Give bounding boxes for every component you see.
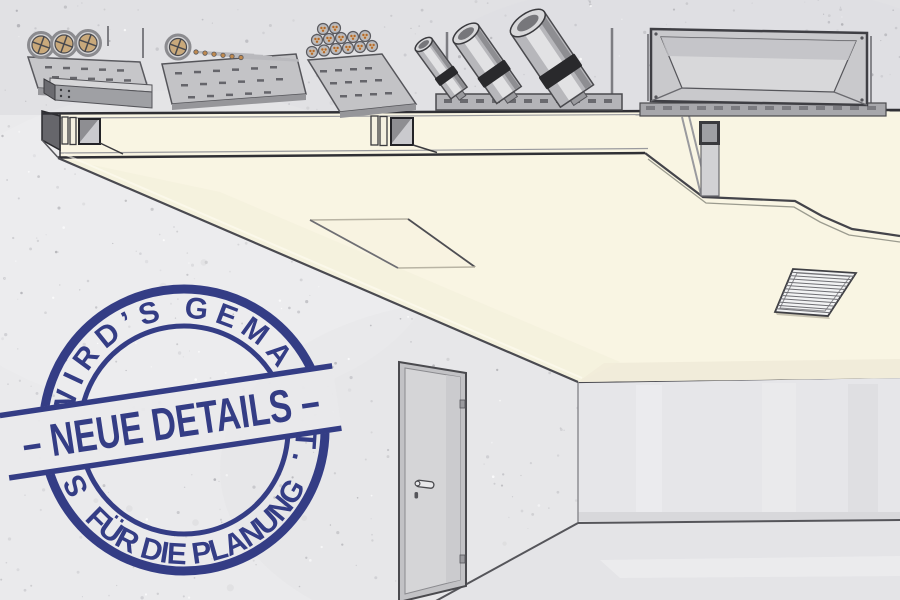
cable-bundle-icon — [331, 44, 342, 55]
cable-bundle-icon — [307, 47, 318, 58]
speckle-dot — [491, 442, 493, 444]
speckle-dot — [18, 197, 20, 199]
tray-perforation — [194, 71, 201, 74]
speckle-dot — [146, 518, 149, 521]
speckle-dot — [97, 24, 99, 26]
speckle-dot — [841, 23, 844, 26]
sill-slot — [731, 106, 740, 110]
speckle-dot — [430, 20, 433, 23]
speckle-dot — [560, 427, 562, 429]
speckle-dot — [370, 325, 372, 327]
speckle-dot — [685, 21, 687, 23]
tray-perforation — [270, 66, 277, 69]
speckle-dot — [184, 487, 185, 488]
speckle-dot — [16, 10, 18, 12]
speckle-dot — [840, 7, 841, 8]
speckle-dot — [198, 351, 200, 353]
speckle-dot — [253, 560, 255, 562]
tray-perforation — [370, 93, 377, 96]
speckle-dot — [194, 577, 196, 579]
rail-slot — [588, 99, 596, 103]
cable-bundle-icon — [367, 41, 378, 52]
power-cable-icon — [52, 32, 77, 57]
speckle-dot — [288, 307, 291, 310]
sill-slot — [833, 106, 842, 110]
speckle-dot — [77, 571, 80, 574]
speckle-dot — [64, 168, 66, 170]
speckle-dot — [400, 318, 402, 320]
speckle-dot — [125, 200, 127, 202]
speckle-dot — [884, 33, 887, 36]
speckle-dot — [330, 524, 332, 526]
profile-bar — [371, 116, 378, 145]
speckle-dot — [82, 596, 83, 597]
speckle-dot — [892, 9, 894, 11]
speckle-dot — [418, 25, 420, 27]
tray-perforation — [238, 80, 245, 83]
speckle-dot — [237, 244, 239, 246]
tray-perforation — [385, 92, 392, 95]
speckle-dot — [348, 358, 350, 360]
speckle-dot — [157, 593, 159, 595]
speckle-dot — [487, 2, 489, 4]
speckle-dot — [387, 455, 390, 458]
speckle-dot — [512, 496, 513, 497]
speckle-dot — [563, 430, 564, 431]
speckle-dot — [374, 576, 377, 579]
speckle-dot — [103, 484, 106, 487]
speckle-dot — [501, 485, 503, 487]
speckle-dot — [137, 9, 138, 10]
speckle-dot — [520, 475, 521, 476]
speckle-dot — [62, 226, 65, 229]
door-leaf-shade — [446, 375, 460, 583]
speckle-dot — [370, 518, 371, 519]
conduit-end — [203, 51, 207, 55]
speckle-dot — [12, 237, 14, 239]
speckle-dot — [220, 519, 222, 521]
cable-bundle-icon — [336, 33, 347, 44]
speckle-dot — [357, 497, 359, 499]
speckle-dot — [160, 270, 162, 272]
speckle-blob — [502, 541, 506, 545]
conduit-end — [221, 53, 225, 57]
speckle-dot — [188, 596, 190, 598]
access-panel-edge — [310, 219, 408, 220]
speckle-dot — [6, 562, 8, 564]
speckle-dot — [57, 251, 58, 252]
tray-perforation — [257, 79, 264, 82]
speckle-dot — [8, 537, 11, 540]
speckle-dot — [370, 400, 372, 402]
speckle-dot — [67, 27, 70, 30]
speckle-dot — [44, 311, 47, 314]
tray-perforation — [124, 79, 131, 82]
rail-slot — [524, 99, 532, 103]
speckle-dot — [395, 580, 396, 581]
speckle-dot — [226, 474, 228, 476]
tray-perforation — [213, 70, 220, 73]
speckle-dot — [348, 388, 351, 391]
speckle-dot — [18, 36, 19, 37]
tray-perforation — [226, 94, 233, 97]
speckle-dot — [28, 171, 30, 173]
speckle-dot — [156, 47, 159, 50]
door-hinge-icon — [460, 555, 465, 563]
speckle-blob — [93, 498, 98, 503]
speckle-dot — [334, 472, 336, 474]
speckle-dot — [404, 54, 407, 57]
hanger-cap-inner — [702, 124, 717, 142]
speckle-dot — [316, 109, 317, 110]
speckle-dot — [673, 9, 675, 11]
speckle-dot — [269, 24, 272, 27]
speckle-dot — [321, 546, 323, 548]
speckle-dot — [499, 400, 501, 402]
tray-perforation — [106, 78, 113, 81]
power-cable-icon — [76, 31, 101, 56]
speckle-dot — [371, 431, 373, 433]
speckle-dot — [187, 252, 189, 254]
speckle-dot — [494, 483, 496, 485]
speckle-dot — [527, 528, 528, 529]
speckle-dot — [191, 264, 194, 267]
speckle-dot — [30, 386, 31, 387]
tray-perforation — [99, 68, 106, 71]
speckle-dot — [502, 473, 504, 475]
speckle-dot — [548, 372, 551, 375]
speckle-dot — [77, 5, 78, 6]
speckle-dot — [548, 508, 549, 509]
speckle-dot — [183, 356, 184, 357]
bolt-icon — [60, 89, 62, 91]
speckle-blob — [301, 515, 307, 521]
speckle-dot — [446, 358, 449, 361]
speckle-dot — [241, 323, 243, 325]
speckle-dot — [619, 55, 620, 56]
speckle-dot — [410, 28, 411, 29]
sill-slot — [663, 106, 672, 110]
speckle-dot — [145, 593, 147, 595]
sill-slot — [646, 106, 655, 110]
speckle-dot — [483, 463, 484, 464]
speckle-dot — [318, 286, 319, 287]
speckle-dot — [492, 475, 495, 478]
speckle-dot — [306, 107, 309, 110]
tray-perforation — [117, 69, 124, 72]
speckle-dot — [889, 74, 890, 75]
speckle-dot — [313, 452, 314, 453]
speckle-dot — [219, 509, 221, 511]
speckle-dot — [0, 579, 2, 581]
bolt-icon — [60, 95, 62, 97]
speckle-dot — [490, 37, 492, 39]
speckle-dot — [823, 14, 824, 15]
speckle-dot — [880, 40, 881, 41]
tray-perforation — [188, 96, 195, 99]
bolt-icon — [68, 96, 70, 98]
back-wall-streak — [848, 384, 878, 518]
tray-perforation — [340, 95, 347, 98]
speckle-dot — [176, 231, 178, 233]
speckle-blob — [227, 584, 234, 591]
rail-slot — [604, 99, 612, 103]
sill-slot — [697, 106, 706, 110]
speckle-dot — [81, 2, 82, 3]
speckle-dot — [213, 478, 216, 481]
speckle-dot — [34, 27, 36, 29]
speckle-dot — [55, 251, 58, 254]
speckle-dot — [108, 492, 109, 493]
speckle-dot — [262, 32, 265, 35]
cable-bundle-icon — [330, 23, 341, 34]
speckle-dot — [245, 242, 248, 245]
tray-perforation — [200, 83, 207, 86]
speckle-dot — [188, 262, 190, 264]
speckle-dot — [218, 481, 219, 482]
speckle-dot — [521, 510, 524, 513]
speckle-dot — [666, 24, 667, 25]
sill-slot — [867, 106, 876, 110]
speckle-dot — [579, 58, 582, 61]
sill-slot — [850, 106, 859, 110]
tray-perforation — [345, 81, 352, 84]
speckle-dot — [557, 491, 560, 494]
speckle-dot — [308, 81, 310, 83]
speckle-dot — [1, 135, 3, 137]
speckle-dot — [24, 495, 25, 496]
conduit-end — [194, 50, 198, 54]
sill-slot — [714, 106, 723, 110]
speckle-dot — [415, 33, 416, 34]
speckle-dot — [36, 237, 37, 238]
speckle-dot — [828, 14, 831, 17]
speckle-dot — [46, 104, 47, 105]
speckle-dot — [475, 0, 478, 3]
rail-slot — [540, 99, 548, 103]
speckle-dot — [371, 534, 373, 536]
speckle-dot — [82, 202, 85, 205]
tray-perforation — [45, 66, 52, 69]
speckle-dot — [574, 24, 577, 27]
room-door — [399, 362, 466, 600]
speckle-dot — [895, 27, 898, 30]
speckle-dot — [589, 1, 591, 3]
speckle-dot — [643, 31, 646, 34]
speckle-blob — [192, 519, 199, 526]
tray-perforation — [245, 92, 252, 95]
speckle-dot — [19, 380, 21, 382]
speckle-dot — [458, 55, 461, 58]
speckle-dot — [191, 474, 192, 475]
speckle-dot — [4, 333, 7, 336]
speckle-dot — [504, 14, 506, 16]
tray-perforation — [88, 78, 95, 81]
tray-perforation — [219, 82, 226, 85]
speckle-dot — [42, 488, 45, 491]
speckle-blob — [126, 505, 133, 512]
speckle-dot — [291, 261, 293, 263]
speckle-dot — [210, 377, 212, 379]
speckle-dot — [40, 509, 42, 511]
speckle-dot — [116, 585, 117, 586]
speckle-dot — [20, 292, 23, 295]
speckle-dot — [751, 2, 753, 4]
speckle-dot — [109, 29, 110, 30]
speckle-dot — [288, 103, 290, 105]
speckle-dot — [104, 9, 106, 11]
speckle-dot — [384, 26, 386, 28]
speckle-dot — [139, 252, 142, 255]
tray-perforation — [365, 67, 372, 70]
speckle-dot — [183, 595, 185, 597]
speckle-dot — [4, 278, 5, 279]
speckle-dot — [594, 76, 596, 78]
speckle-dot — [575, 499, 578, 502]
speckle-dot — [36, 392, 39, 395]
profile-bar — [62, 117, 68, 144]
speckle-dot — [177, 298, 178, 299]
sill-slot — [680, 106, 689, 110]
speckle-dot — [508, 517, 509, 518]
speckle-dot — [486, 455, 489, 458]
sill-slot — [765, 106, 774, 110]
speckle-dot — [33, 154, 36, 157]
tray-perforation — [232, 68, 239, 71]
speckle-dot — [163, 239, 165, 241]
speckle-dot — [189, 351, 190, 352]
speckle-dot — [410, 341, 411, 342]
speckle-dot — [18, 131, 20, 133]
door-hinge-icon — [460, 400, 465, 408]
speckle-dot — [245, 40, 248, 43]
speckle-dot — [115, 361, 117, 363]
tray-perforation — [335, 69, 342, 72]
conduit-end — [212, 52, 216, 56]
speckle-dot — [8, 125, 11, 128]
cable-bundle-icon — [318, 24, 329, 35]
speckle-dot — [79, 536, 82, 539]
speckle-dot — [173, 226, 175, 228]
speckle-dot — [415, 92, 417, 94]
speckle-dot — [177, 511, 180, 514]
speckle-dot — [150, 208, 153, 211]
profile-bar — [380, 117, 387, 146]
tray-perforation — [207, 95, 214, 98]
speckle-dot — [17, 299, 18, 300]
speckle-dot — [229, 271, 231, 273]
speckle-dot — [194, 378, 197, 381]
sill-slot — [799, 106, 808, 110]
access-panel-edge — [398, 267, 475, 268]
conduit-end — [239, 55, 243, 59]
tray-perforation — [63, 67, 70, 70]
speckle-dot — [135, 342, 137, 344]
speckle-dot — [212, 23, 213, 24]
speckle-dot — [297, 310, 300, 313]
speckle-dot — [37, 175, 40, 178]
speckle-dot — [17, 24, 20, 27]
speckle-dot — [64, 6, 67, 9]
speckle-dot — [225, 372, 227, 374]
tray-perforation — [81, 68, 88, 71]
speckle-dot — [371, 539, 373, 541]
speckle-dot — [1, 337, 4, 340]
speckle-dot — [74, 173, 76, 175]
tray-perforation — [330, 82, 337, 85]
speckle-dot — [305, 557, 307, 559]
speckle-dot — [292, 19, 294, 21]
speckle-dot — [281, 308, 282, 309]
handle-rose — [415, 481, 420, 486]
speckle-dot — [108, 595, 110, 597]
speckle-dot — [194, 278, 195, 279]
speckle-dot — [387, 449, 389, 451]
speckle-dot — [880, 75, 883, 78]
speckle-dot — [390, 15, 392, 17]
speckle-dot — [621, 19, 622, 20]
tray-perforation — [276, 78, 283, 81]
speckle-dot — [733, 9, 735, 11]
speckle-dot — [252, 485, 255, 488]
speckle-dot — [341, 543, 343, 545]
speckle-dot — [841, 16, 842, 17]
speckle-dot — [300, 278, 303, 281]
speckle-dot — [46, 234, 47, 235]
speckle-dot — [159, 234, 161, 236]
speckle-dot — [79, 289, 80, 290]
speckle-dot — [421, 9, 424, 12]
speckle-dot — [136, 251, 137, 252]
speckle-dot — [407, 316, 409, 318]
cable-bundle-icon — [312, 35, 323, 46]
speckle-dot — [25, 101, 26, 102]
profile-bar — [70, 118, 76, 145]
ventilation-duct — [640, 29, 886, 116]
speckle-dot — [16, 568, 19, 571]
speckle-blob — [201, 259, 208, 266]
speckle-dot — [523, 74, 525, 76]
speckle-dot — [279, 299, 281, 301]
cable-bundle-icon — [355, 42, 366, 53]
speckle-dot — [309, 559, 312, 562]
tray-perforation — [375, 79, 382, 82]
cable-bundle-icon — [343, 43, 354, 54]
speckle-dot — [557, 454, 559, 456]
speckle-dot — [37, 240, 39, 242]
speckle-dot — [15, 260, 16, 261]
speckle-dot — [145, 260, 148, 263]
tray-perforation — [320, 70, 327, 73]
speckle-dot — [221, 522, 223, 524]
speckle-dot — [24, 589, 27, 592]
speckle-dot — [371, 495, 373, 497]
speckle-dot — [140, 596, 143, 599]
speckle-dot — [87, 280, 90, 283]
sill-slot — [748, 106, 757, 110]
speckle-dot — [464, 68, 466, 70]
speckle-dot — [30, 585, 32, 587]
speckle-dot — [7, 383, 9, 385]
speckle-dot — [255, 564, 257, 566]
speckle-dot — [52, 297, 54, 299]
speckle-dot — [291, 476, 293, 478]
speckle-dot — [411, 318, 412, 319]
speckle-dot — [804, 2, 805, 3]
speckle-dot — [531, 513, 534, 516]
speckle-dot — [186, 274, 188, 276]
power-cable-icon — [29, 33, 54, 58]
